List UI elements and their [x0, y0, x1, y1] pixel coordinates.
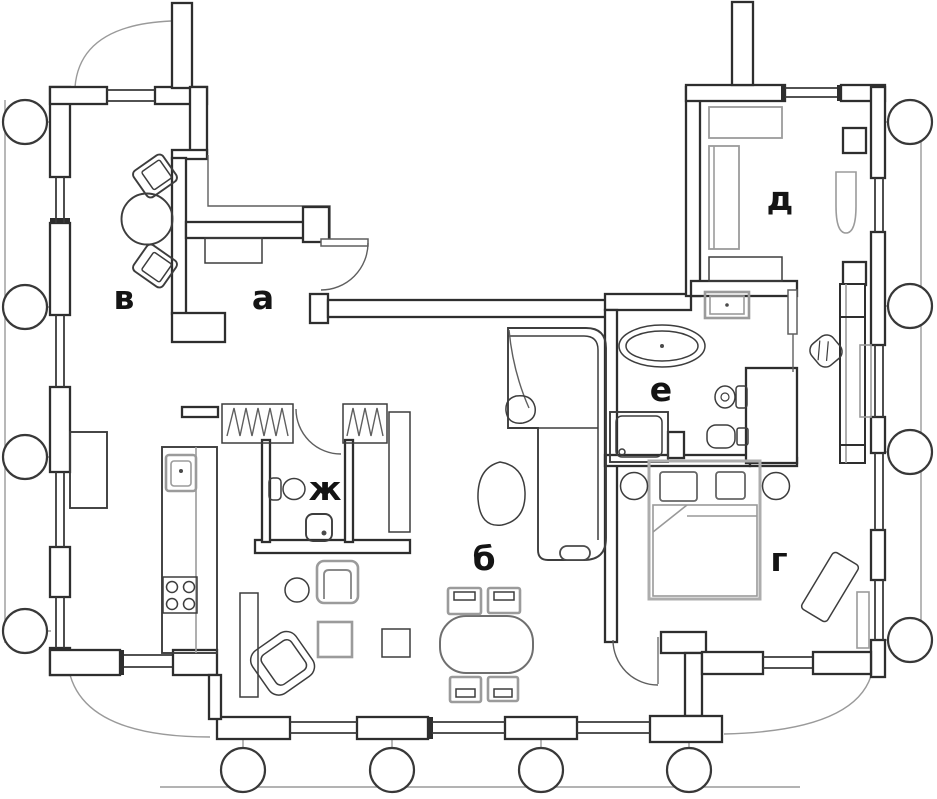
- nightstand: [621, 473, 648, 500]
- nightstand: [763, 473, 790, 500]
- bathtub: [619, 325, 705, 367]
- wardrobe-zone: [222, 404, 410, 532]
- room-v-furniture: [122, 153, 179, 290]
- low-cabinet: [709, 257, 782, 281]
- bidet: [707, 425, 748, 448]
- fridge: [70, 432, 107, 508]
- room-label-g: г: [770, 540, 787, 579]
- round-table: [122, 194, 173, 245]
- sofa: [508, 328, 606, 560]
- armchair-tilted: [246, 627, 319, 700]
- wardrobe-door-arc: [296, 409, 341, 454]
- floor-plan-drawing: в а ж б д е г: [0, 0, 937, 799]
- room-label-b: б: [472, 539, 495, 578]
- pouf-pebble: [478, 462, 525, 525]
- floor-plan-page: в а ж б д е г: [0, 0, 937, 799]
- coffee-table: [318, 622, 352, 657]
- vanity-sink: [705, 292, 749, 318]
- bedroom-g-door: [613, 637, 658, 685]
- radiator: [857, 592, 869, 648]
- living-room-b: [240, 328, 606, 702]
- side-table: [382, 629, 410, 657]
- tv-console: [240, 593, 258, 697]
- room-label-zh: ж: [309, 469, 342, 508]
- hall-closet: [205, 238, 262, 263]
- standing-mirror: [836, 172, 856, 233]
- wardrobe: [709, 107, 782, 138]
- tall-cabinet: [389, 412, 410, 532]
- toilet: [715, 386, 747, 408]
- bedroom-g-furniture: [621, 461, 860, 623]
- dining-table: [440, 616, 533, 673]
- bench-tilted: [800, 551, 860, 623]
- room-label-e: е: [650, 370, 672, 409]
- room-label-a: а: [252, 278, 274, 317]
- kitchen: [70, 432, 217, 653]
- walls: [50, 2, 885, 742]
- entry-door: [321, 239, 368, 290]
- round-pouf: [285, 578, 309, 602]
- room-label-d: д: [767, 179, 794, 218]
- armchair: [317, 561, 358, 603]
- room-label-v: в: [114, 278, 135, 317]
- wc-toilet: [306, 514, 332, 541]
- double-bed: [649, 461, 760, 599]
- pouf-pebble: [506, 396, 535, 424]
- dining-set: [440, 588, 533, 702]
